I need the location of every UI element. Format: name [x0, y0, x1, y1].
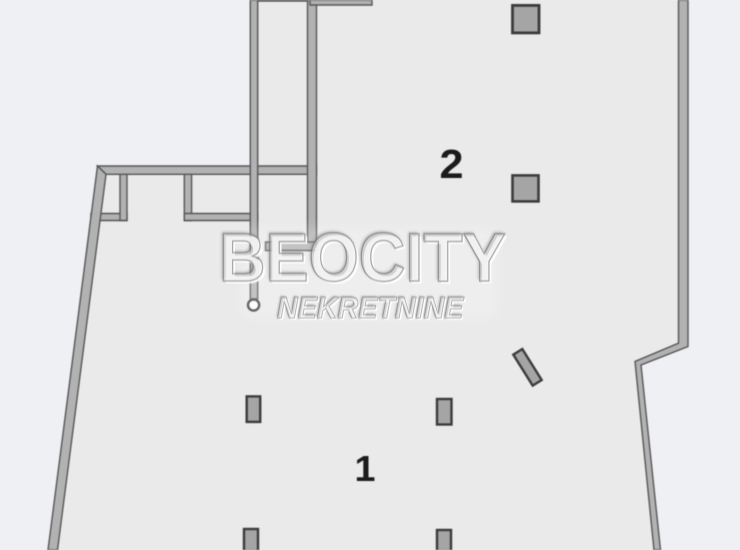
svg-text:2: 2: [440, 141, 464, 187]
svg-text:1: 1: [355, 448, 376, 489]
